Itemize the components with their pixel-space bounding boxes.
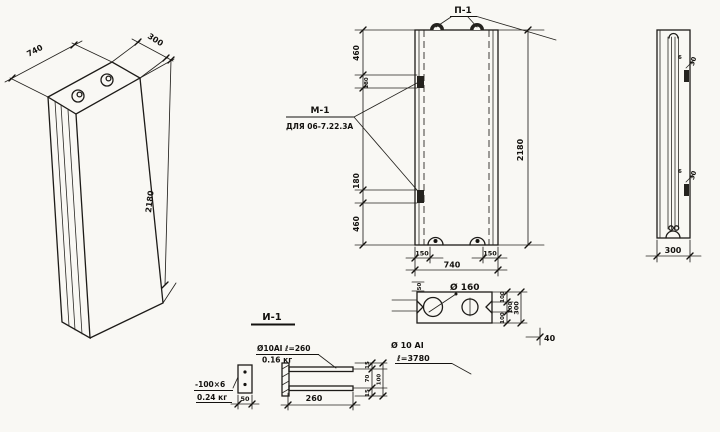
dim-2180: 2180 — [516, 138, 525, 161]
dim-50: 50 — [417, 283, 423, 291]
lifting-loop-icon — [669, 34, 678, 39]
dim-15-bottom: 15 — [365, 389, 371, 397]
plate-gap-top: 6 — [678, 55, 682, 61]
offset-dim: 40 — [526, 328, 556, 345]
dim-100-a: 100 — [500, 291, 506, 303]
rod-label: Ø10АI ℓ=260 — [257, 344, 311, 353]
bar-label: Ø 10 АI — [391, 340, 424, 350]
plate-size-label: -100×6 — [195, 380, 225, 389]
front-view: П-1 М-1 ДЛЯ 06-7.22.3А — [286, 6, 556, 276]
dim-260: 260 — [306, 394, 323, 403]
bar-callout: Ø 10 АI ℓ=3780 — [391, 340, 471, 374]
dim-460-bottom: 460 — [352, 216, 361, 232]
side-plate-marks: 6 30 6 30 — [678, 55, 698, 196]
plate-weight-label: 0.24 кг — [197, 393, 227, 402]
isometric-view: 740 300 2180 — [5, 32, 176, 338]
loop-callout: П-1 — [436, 6, 556, 40]
front-bottom-dims: 150 150 740 — [406, 247, 507, 276]
embedded-plate-marks — [417, 76, 424, 203]
iso-dimensions: 740 300 2180 — [5, 32, 176, 303]
plate-gap-bottom: 6 — [678, 169, 682, 175]
lifting-loop-icon — [428, 23, 485, 245]
detail-view: И-1 -100×6 0.24 кг 50 Ø10АI — [194, 312, 471, 410]
dim-300-side: 300 — [665, 246, 682, 255]
side-view: 6 30 6 30 300 — [646, 30, 701, 262]
embed-note: ДЛЯ 06-7.22.3А — [286, 122, 353, 131]
front-left-dim-chain: 460 180 180 460 — [352, 27, 417, 248]
dim-150-right: 150 — [483, 250, 497, 258]
notch-dim: 50 — [412, 282, 424, 291]
front-height-dim: 2180 — [498, 27, 544, 248]
side-outline — [657, 30, 690, 238]
iso-depth-dim: 300 — [146, 32, 165, 49]
dim-460-top: 460 — [352, 45, 361, 61]
hole-dia-label: Ø 160 — [450, 282, 480, 293]
dim-70: 70 — [365, 375, 371, 383]
loop-label: П-1 — [454, 6, 472, 16]
dim-180-bottom: 180 — [352, 173, 361, 189]
section-outline — [417, 292, 492, 323]
section-right-dims: 100 100 100 300 — [492, 289, 527, 326]
hole-callout: Ø 160 — [429, 282, 480, 312]
bar-length-label: ℓ=3780 — [396, 354, 430, 363]
dim-50-plate: 50 — [240, 395, 250, 403]
lifting-loop-icon — [72, 74, 113, 102]
detail-title: И-1 — [262, 312, 282, 323]
dim-180-top: 180 — [364, 77, 370, 89]
dim-100-c: 100 — [500, 312, 506, 324]
plate-dim-bottom: 30 — [688, 169, 699, 181]
dim-300-total: 300 — [513, 301, 521, 315]
dim-40: 40 — [544, 334, 556, 343]
dim-100-total: 100 — [377, 374, 383, 386]
anchor-plate-face: -100×6 0.24 кг 50 — [194, 365, 259, 409]
rod-weight-label: 0.16 кг — [262, 356, 292, 365]
embed-label: М-1 — [311, 106, 330, 116]
detail-right-dims: 15 70 15 100 — [353, 360, 387, 399]
anchor-assembly: Ø10АI ℓ=260 0.16 кг 260 — [256, 344, 360, 410]
dim-150-left: 150 — [415, 250, 429, 258]
engineering-drawing: 740 300 2180 — [0, 0, 720, 432]
iso-width-dim: 740 — [25, 43, 44, 59]
plate-dim-top: 30 — [688, 55, 699, 67]
panel-outline — [415, 30, 498, 245]
channel-hole — [424, 298, 443, 317]
side-depth-dim: 300 — [646, 240, 701, 262]
section-view: Ø 160 50 100 100 100 300 — [392, 282, 556, 345]
dim-15-top: 15 — [365, 361, 371, 369]
dim-740: 740 — [444, 261, 461, 270]
